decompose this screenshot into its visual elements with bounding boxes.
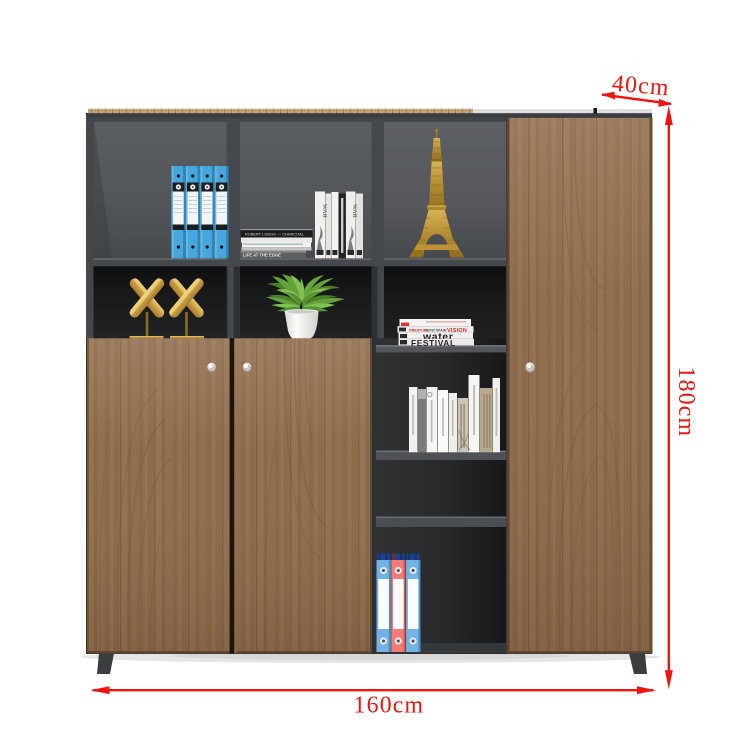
svg-text:FESTIVAL: FESTIVAL [411,338,456,348]
svg-text:WAR: WAR [351,204,358,219]
svg-text:WAR: WAR [321,204,328,219]
svg-text:180cm: 180cm [673,367,699,438]
svg-text:ROBERT LONGO — CHARCOAL: ROBERT LONGO — CHARCOAL [245,232,305,237]
svg-text:160cm: 160cm [354,693,425,719]
svg-text:40cm: 40cm [611,71,671,102]
svg-text:LIFE AT THE EDGE: LIFE AT THE EDGE [243,253,281,258]
